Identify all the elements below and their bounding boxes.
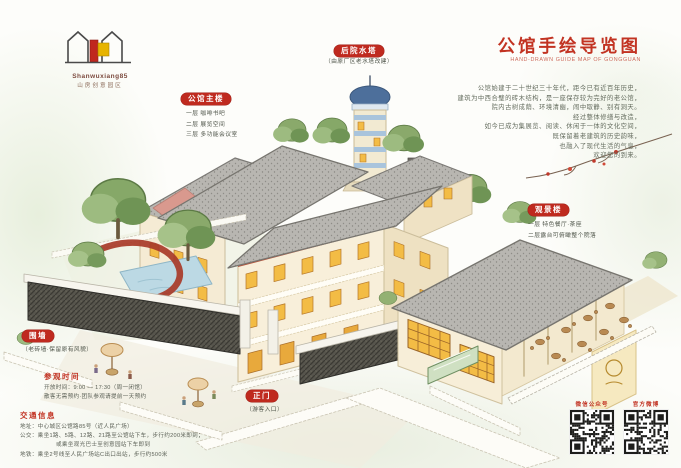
intro-line: 经过整体修缮与改造，: [457, 113, 641, 123]
hours-heading: 参观时间: [44, 371, 146, 382]
guide-map-poster: Shanwuxiang85 山房创意园区 公馆手绘导览图 HAND-DRAWN …: [0, 0, 681, 468]
logo-text-cn: 山房创意园区: [48, 81, 152, 89]
bush: [379, 292, 397, 305]
view-building-line: 一层 特色餐厅·茶座: [528, 220, 596, 231]
traffic-line: 公交：乘坐1路、5路、12路、21路至公馆站下车，步行约200米即到；: [20, 432, 204, 441]
gate-badge: 正门: [246, 390, 278, 402]
weibo-qr-code: [624, 410, 668, 454]
traffic-info: 交通信息 地址：中心城区公馆路85号（近人民广场） 公交：乘坐1路、5路、12路…: [20, 410, 204, 460]
traffic-heading: 交通信息: [20, 410, 204, 421]
annotation-water-tower: 后院水塔 （由原厂区老水塔改建）: [316, 40, 402, 67]
intro-line: 如今已成为集展览、阅读、休闲于一体的文化空间，: [457, 122, 641, 132]
intro-paragraph: 公馆始建于二十世纪三十年代，距今已有近百年历史， 建筑为中西合璧的砖木结构，是一…: [457, 84, 641, 161]
intro-line: 既保留着老建筑的历史韵味，: [457, 132, 641, 142]
tree: [382, 125, 424, 152]
gate-caption: （游客入口）: [246, 406, 283, 415]
tree: [273, 119, 309, 143]
wall-badge: 围墙: [22, 330, 54, 342]
logo-houses-icon: [65, 26, 135, 66]
water-tower-caption: （由原厂区老水塔改建）: [316, 58, 402, 67]
annotation-wall: 围墙 （老砖墙·保留原有风貌）: [22, 325, 93, 355]
intro-line: 也融入了现代生活的气息，: [457, 142, 641, 152]
page-title: 公馆手绘导览图: [498, 36, 642, 56]
main-building-line: 一层 咖啡书吧: [186, 109, 238, 120]
header: 公馆手绘导览图 HAND-DRAWN GUIDE MAP OF GONGGUAN: [498, 36, 642, 63]
traffic-line: 地址：中心城区公馆路85号（近人民广场）: [20, 423, 204, 432]
annotation-main-building: 公馆主楼 一层 咖啡书吧 二层 展览空间 三层 多功能会议室: [181, 88, 238, 141]
visiting-hours: 参观时间 开放时间：9:00 — 17:30（周一闭馆） 散客无需预约·团队参观…: [44, 371, 146, 402]
traffic-line: 或乘坐观光巴士至创意园站下车即到: [20, 441, 204, 450]
wechat-qr-label: 微信公众号: [565, 400, 619, 408]
logo-text-en: Shanwuxiang85: [48, 73, 152, 80]
main-building-line: 三层 多功能会议室: [186, 130, 238, 141]
intro-line: 公馆始建于二十世纪三十年代，距今已有近百年历史，: [457, 84, 641, 94]
tree: [313, 118, 351, 144]
view-building-badge: 观景楼: [528, 204, 569, 216]
wechat-qr-code: [570, 410, 614, 454]
main-building-badge: 公馆主楼: [181, 93, 231, 105]
hours-line: 散客无需预约·团队参观请提前一天预约: [44, 393, 146, 402]
logo: Shanwuxiang85 山房创意园区: [48, 26, 152, 89]
wall-caption: （老砖墙·保留原有风貌）: [22, 346, 93, 355]
gate-pillar: [268, 310, 278, 354]
intro-line: 院内古树成荫、环境清幽，闹中取静、别有洞天。: [457, 103, 641, 113]
annotation-view-building: 观景楼 一层 特色餐厅·茶座 二层露台可俯瞰整个院落: [528, 199, 596, 241]
annotation-gate: 正门 （游客入口）: [246, 385, 283, 415]
water-tower-badge: 后院水塔: [334, 45, 384, 57]
view-building-line: 二层露台可俯瞰整个院落: [528, 231, 596, 242]
traffic-line: 地铁：乘坐2号线至人民广场站C出口出站，步行约500米: [20, 451, 204, 460]
main-building-line: 二层 展览空间: [186, 120, 238, 131]
page-subtitle: HAND-DRAWN GUIDE MAP OF GONGGUAN: [498, 57, 642, 63]
tree: [642, 252, 667, 269]
intro-line: 欢迎您的到来。: [457, 151, 641, 161]
intro-line: 建筑为中西合璧的砖木结构，是一座保存较为完好的老公馆，: [457, 94, 641, 104]
gate-pillar: [240, 300, 250, 348]
weibo-qr-label: 官方微博: [619, 400, 673, 408]
hours-line: 开放时间：9:00 — 17:30（周一闭馆）: [44, 384, 146, 393]
